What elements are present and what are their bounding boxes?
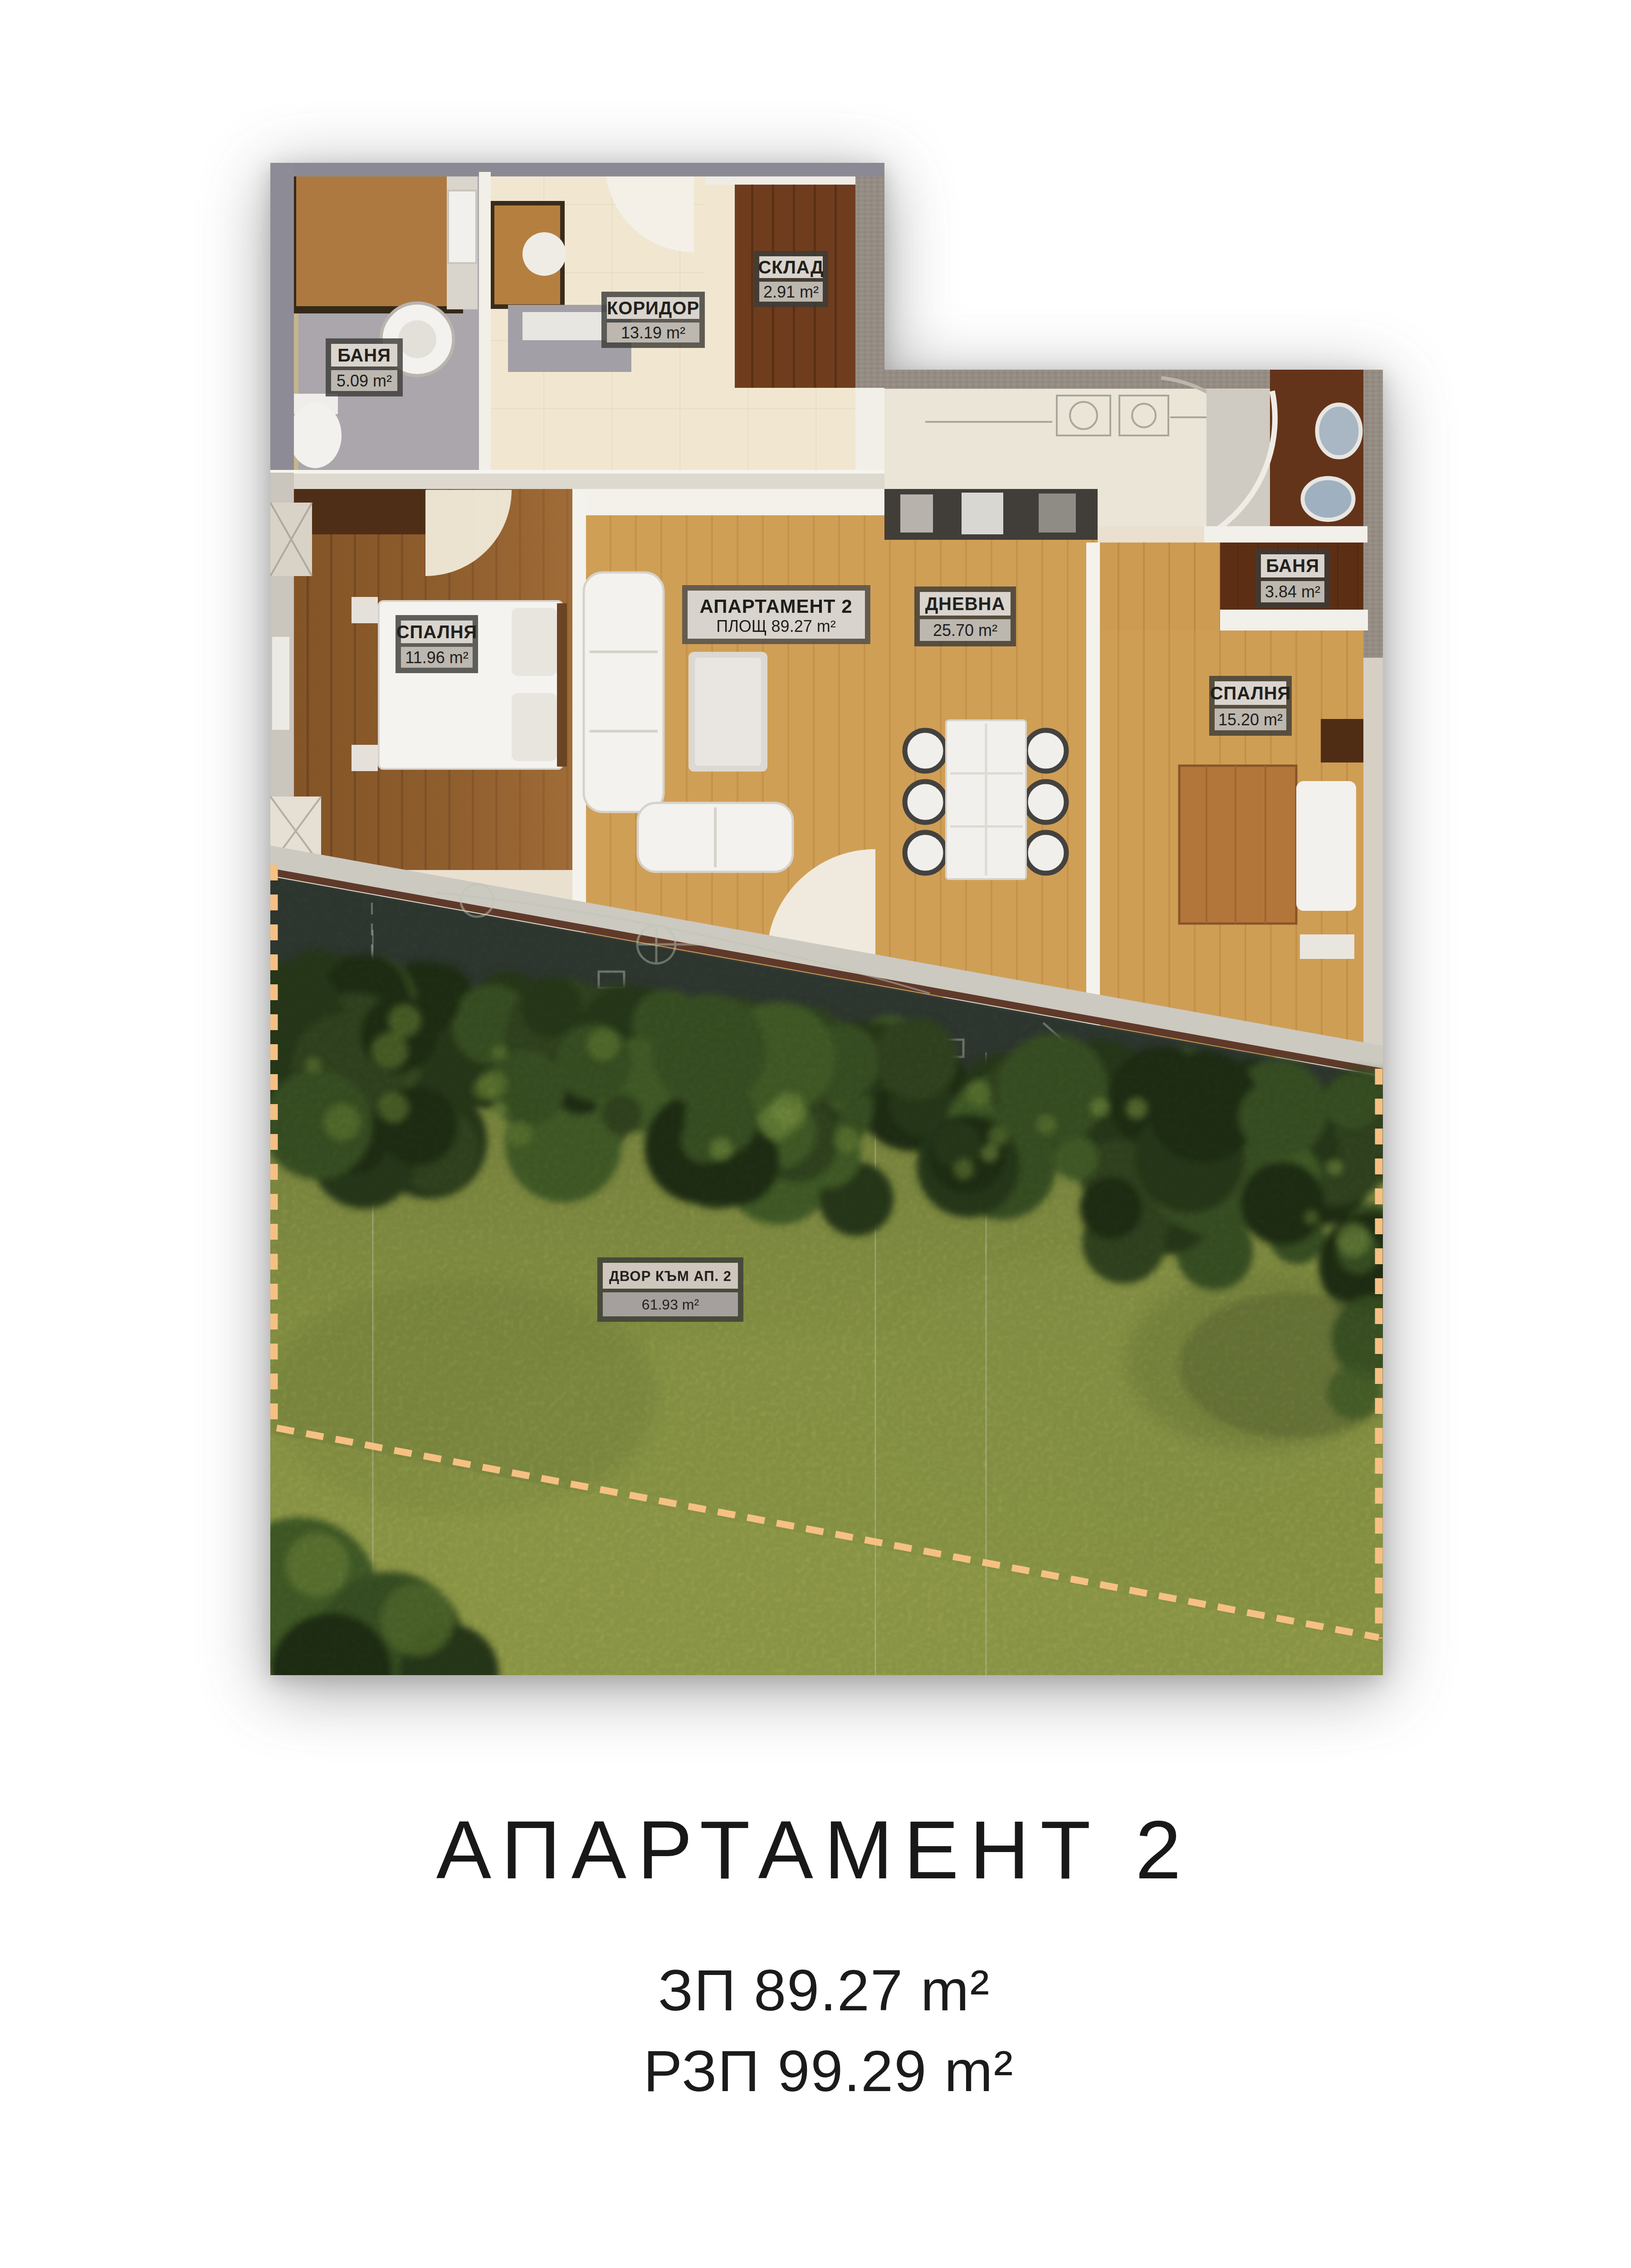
svg-text:ПЛОЩ 89.27 m²: ПЛОЩ 89.27 m²: [716, 617, 835, 635]
svg-text:КОРИДОР: КОРИДОР: [607, 298, 699, 318]
svg-text:ДНЕВНА: ДНЕВНА: [925, 594, 1006, 614]
svg-text:25.70 m²: 25.70 m²: [933, 621, 997, 640]
svg-text:3.84 m²: 3.84 m²: [1265, 582, 1320, 601]
svg-text:СПАЛНЯ: СПАЛНЯ: [1210, 683, 1291, 703]
svg-text:СПАЛНЯ: СПАЛНЯ: [396, 622, 478, 642]
svg-text:СКЛАД: СКЛАД: [758, 257, 824, 277]
svg-text:БАНЯ: БАНЯ: [1266, 556, 1319, 576]
svg-text:15.20 m²: 15.20 m²: [1218, 710, 1283, 729]
svg-text:2.91 m²: 2.91 m²: [763, 283, 819, 301]
svg-text:13.19 m²: 13.19 m²: [621, 323, 685, 342]
svg-text:ДВОР КЪМ АП. 2: ДВОР КЪМ АП. 2: [609, 1268, 732, 1284]
svg-text:5.09 m²: 5.09 m²: [337, 371, 392, 390]
svg-text:61.93 m²: 61.93 m²: [642, 1296, 699, 1313]
svg-text:АПАРТАМЕНТ 2: АПАРТАМЕНТ 2: [436, 1804, 1192, 1896]
svg-text:РЗП 99.29 m²: РЗП 99.29 m²: [644, 2038, 1014, 2103]
svg-text:ЗП 89.27 m²: ЗП 89.27 m²: [658, 1958, 990, 2023]
svg-text:БАНЯ: БАНЯ: [337, 345, 391, 365]
svg-text:АПАРТАМЕНТ 2: АПАРТАМЕНТ 2: [699, 596, 852, 617]
svg-text:11.96 m²: 11.96 m²: [405, 648, 468, 667]
